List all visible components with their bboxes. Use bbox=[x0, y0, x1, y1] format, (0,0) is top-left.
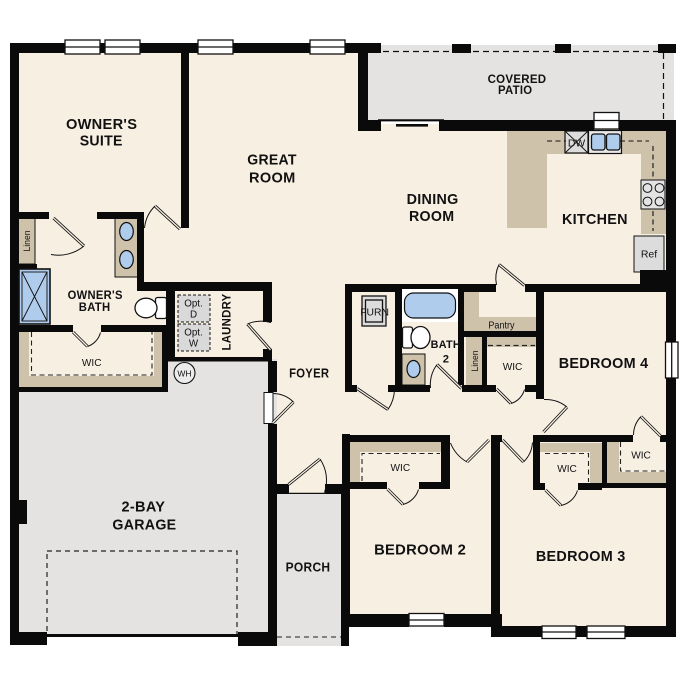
svg-text:BEDROOM 3: BEDROOM 3 bbox=[536, 548, 626, 565]
svg-text:W: W bbox=[189, 339, 199, 350]
svg-text:WIC: WIC bbox=[631, 451, 651, 462]
svg-text:FOYER: FOYER bbox=[289, 365, 329, 380]
svg-text:Opt.: Opt. bbox=[184, 328, 203, 339]
svg-text:WIC: WIC bbox=[82, 358, 102, 369]
svg-text:ROOM: ROOM bbox=[409, 209, 454, 225]
svg-text:DINING: DINING bbox=[407, 192, 459, 208]
svg-text:SUITE: SUITE bbox=[80, 133, 123, 150]
svg-text:PORCH: PORCH bbox=[286, 559, 331, 574]
svg-text:Pantry: Pantry bbox=[488, 321, 514, 332]
svg-text:Opt.: Opt. bbox=[184, 299, 203, 310]
svg-text:GARAGE: GARAGE bbox=[112, 518, 176, 534]
svg-text:OWNER'S: OWNER'S bbox=[66, 116, 137, 133]
svg-text:KITCHEN: KITCHEN bbox=[562, 212, 628, 228]
svg-text:Linen: Linen bbox=[22, 231, 33, 252]
svg-text:WIC: WIC bbox=[557, 464, 577, 475]
svg-text:Linen: Linen bbox=[470, 351, 481, 372]
svg-text:BATH: BATH bbox=[431, 339, 461, 351]
svg-text:DW: DW bbox=[568, 139, 586, 150]
svg-text:D: D bbox=[190, 310, 197, 321]
svg-text:BEDROOM 4: BEDROOM 4 bbox=[559, 355, 649, 372]
svg-text:LAUNDRY: LAUNDRY bbox=[220, 294, 234, 351]
svg-text:2-BAY: 2-BAY bbox=[122, 499, 166, 515]
svg-text:ROOM: ROOM bbox=[249, 170, 296, 186]
svg-text:OWNER'S: OWNER'S bbox=[68, 290, 123, 302]
svg-text:2: 2 bbox=[443, 354, 450, 366]
svg-text:GREAT: GREAT bbox=[247, 152, 297, 168]
svg-text:BEDROOM 2: BEDROOM 2 bbox=[374, 542, 466, 559]
svg-text:WIC: WIC bbox=[391, 463, 411, 474]
svg-text:WH: WH bbox=[177, 368, 191, 378]
svg-text:PATIO: PATIO bbox=[498, 83, 532, 97]
svg-text:WIC: WIC bbox=[503, 362, 523, 373]
svg-text:Ref: Ref bbox=[641, 249, 657, 261]
svg-text:FURN: FURN bbox=[360, 308, 389, 319]
svg-text:BATH: BATH bbox=[79, 302, 111, 314]
